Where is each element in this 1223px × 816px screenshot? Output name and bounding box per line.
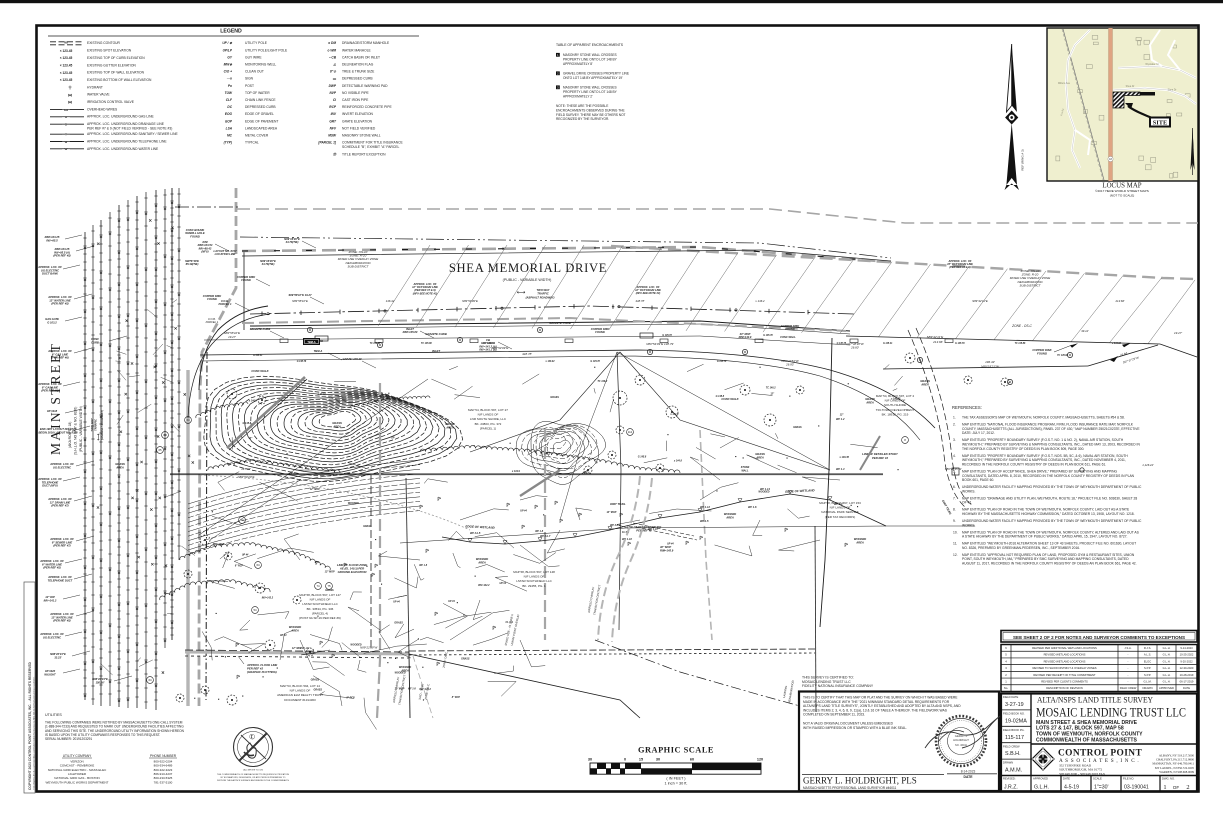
svg-text:MAP 58, BLOCK 597, LOT 147: MAP 58, BLOCK 597, LOT 147 bbox=[299, 593, 341, 597]
svg-text:MAP 58, BLOCK 597, LOT 148: MAP 58, BLOCK 597, LOT 148 bbox=[513, 570, 555, 574]
svg-text:63: 63 bbox=[163, 433, 167, 437]
svg-text:12" MOP: 12" MOP bbox=[606, 511, 616, 514]
svg-text:NO. 8326, PREPARED BY GREENMAN: NO. 8326, PREPARED BY GREENMAN-PEDERSEN,… bbox=[962, 546, 1080, 550]
svg-text:GRANITE CURB: GRANITE CURB bbox=[250, 327, 271, 331]
svg-text:▪ CB: ▪ CB bbox=[329, 55, 336, 59]
svg-text:FIELD CREW: FIELD CREW bbox=[1120, 686, 1137, 690]
svg-text:WORKS.: WORKS. bbox=[962, 523, 975, 527]
svg-text:120: 120 bbox=[757, 757, 763, 761]
svg-text:WOODED: WOODED bbox=[724, 512, 736, 516]
svg-text:PARCEL 1: PARCEL 1 bbox=[206, 320, 219, 324]
svg-text:SOUTH SHORE: SOUTH SHORE bbox=[884, 403, 906, 407]
svg-text:DUCT (NFV): DUCT (NFV) bbox=[42, 484, 57, 488]
svg-text:11.: 11. bbox=[953, 542, 957, 546]
svg-text:CLF: CLF bbox=[226, 98, 233, 102]
svg-text:LOCATION LINE: LOCATION LINE bbox=[215, 252, 236, 256]
svg-text:10-28-2019: 10-28-2019 bbox=[1180, 673, 1194, 677]
svg-text:GRATE ELEVATION: GRATE ELEVATION bbox=[342, 119, 373, 123]
svg-text:(POST 9A SP-19 PER REF #9): (POST 9A SP-19 PER REF #9) bbox=[299, 616, 341, 620]
svg-text:AUGUST 11, 2017, RECORDED IN T: AUGUST 11, 2017, RECORDED IN THE NORFOLK… bbox=[962, 562, 1137, 566]
svg-text:SHEA MEMORIAL DRIVE: SHEA MEMORIAL DRIVE bbox=[449, 261, 607, 275]
svg-text:(AKA ROUTE 18): (AKA ROUTE 18) bbox=[68, 422, 72, 448]
svg-text:LSA: LSA bbox=[226, 126, 233, 130]
svg-text:A STATE HIGHWAY BY THE DEPARTM: A STATE HIGHWAY BY THE DEPARTMENT OF PUB… bbox=[962, 535, 1128, 539]
svg-text:UG ELECTRIC: UG ELECTRIC bbox=[43, 635, 61, 639]
svg-text:NO VISIBLE PIPE: NO VISIBLE PIPE bbox=[342, 91, 370, 95]
svg-text:FIDELITY NATIONAL INSURANCE CO: FIDELITY NATIONAL INSURANCE COMPANY bbox=[802, 684, 874, 688]
svg-text:AMERICAN ELM REALTY TRUST: AMERICAN ELM REALTY TRUST bbox=[277, 693, 323, 697]
svg-text:WOODED: WOODED bbox=[348, 502, 359, 505]
svg-text:G.L.H.: G.L.H. bbox=[1163, 680, 1171, 684]
svg-text:FIELD BOOK NO.: FIELD BOOK NO. bbox=[1003, 712, 1025, 716]
svg-text:UP / ⊕: UP / ⊕ bbox=[222, 41, 232, 45]
svg-text:G 145.78: G 145.78 bbox=[590, 360, 600, 363]
svg-text:TC 146.21: TC 146.21 bbox=[483, 342, 494, 345]
svg-text:WF 1-8: WF 1-8 bbox=[419, 564, 428, 567]
svg-text:FOUND: FOUND bbox=[1037, 351, 1047, 355]
svg-text:SERIAL NUMBER: 20191203291: SERIAL NUMBER: 20191203291 bbox=[45, 737, 92, 741]
svg-text:DIRT TRAIL: DIRT TRAIL bbox=[610, 502, 626, 506]
svg-text:G 145.78: G 145.78 bbox=[662, 334, 672, 337]
svg-text:REINFORCED CONCRETE PIPE: REINFORCED CONCRETE PIPE bbox=[342, 105, 392, 109]
svg-text:APPROXIMATELY 2': APPROXIMATELY 2' bbox=[563, 94, 593, 98]
svg-text:112: 112 bbox=[628, 430, 633, 434]
svg-text:1: 1 bbox=[1163, 784, 1166, 791]
svg-text:G.L.H.: G.L.H. bbox=[1034, 784, 1049, 790]
svg-text:LINE OF DETAILED STUDY: LINE OF DETAILED STUDY bbox=[627, 525, 662, 529]
svg-text:UG ELECTRIC: UG ELECTRIC bbox=[53, 465, 71, 469]
svg-text:GRASS: GRASS bbox=[865, 397, 875, 401]
svg-text:WOODED: WOODED bbox=[759, 491, 770, 494]
svg-text:AREA: AREA bbox=[582, 471, 590, 474]
svg-text:G 145.8: G 145.8 bbox=[243, 422, 252, 425]
svg-text:UP #4: UP #4 bbox=[520, 509, 527, 512]
svg-text:TV: TV bbox=[595, 461, 598, 464]
svg-text:WOODED: WOODED bbox=[476, 557, 488, 561]
svg-text:S89°58'10"E 19.27: S89°58'10"E 19.27 bbox=[288, 293, 312, 297]
svg-text:NFV: NFV bbox=[330, 126, 337, 130]
svg-text:G 145.41: G 145.41 bbox=[253, 354, 263, 357]
svg-text:DATE: JULY 17, 2012.: DATE: JULY 17, 2012. bbox=[962, 431, 995, 435]
svg-text:CONC WALL: CONC WALL bbox=[780, 335, 796, 339]
svg-text:LEGEND: LEGEND bbox=[220, 29, 242, 35]
svg-text:RCP: RCP bbox=[329, 105, 337, 109]
svg-text:DATE: DATE bbox=[964, 775, 974, 779]
svg-text:SUB-DISTRICT: SUB-DISTRICT bbox=[1020, 283, 1042, 287]
svg-text:NOT FIELD VERIFIED: NOT FIELD VERIFIED bbox=[342, 126, 376, 130]
svg-text:SCALE: SCALE bbox=[1093, 777, 1102, 781]
svg-text:UTILITY COMPANY: UTILITY COMPANY bbox=[63, 754, 92, 758]
svg-text:-: - bbox=[1128, 674, 1129, 677]
svg-text:(PER-REF #6): (PER-REF #6) bbox=[51, 356, 68, 360]
svg-text:S89°42'11"E: S89°42'11"E bbox=[972, 299, 988, 303]
svg-text:DRAWN: DRAWN bbox=[1003, 761, 1013, 765]
svg-text:ENCROACHMENTS OBSERVED DURING: ENCROACHMENTS OBSERVED DURING THE bbox=[556, 108, 625, 112]
svg-text:No.: No. bbox=[1004, 686, 1008, 690]
svg-text:( IN FEET ): ( IN FEET ) bbox=[666, 777, 686, 781]
svg-text:WALL: WALL bbox=[741, 469, 749, 472]
svg-text:-: - bbox=[1128, 654, 1129, 657]
svg-text:INV=95.5: INV=95.5 bbox=[46, 238, 58, 242]
svg-text:MASSACHUSETTS PROFESSIONAL LAN: MASSACHUSETTS PROFESSIONAL LAND SURVEYOR… bbox=[803, 786, 897, 790]
svg-text:UP #318: UP #318 bbox=[47, 409, 58, 413]
svg-text:COMMITMENT FOR TITLE INSURANCE: COMMITMENT FOR TITLE INSURANCE bbox=[342, 141, 403, 145]
svg-text:(GRAPHIC PLOTTING): (GRAPHIC PLOTTING) bbox=[247, 670, 277, 674]
svg-text:3-27-19: 3-27-19 bbox=[1005, 702, 1024, 708]
svg-text:DRAINAGE/STORM MANHOLE: DRAINAGE/STORM MANHOLE bbox=[342, 41, 390, 45]
svg-text:× 123.45: × 123.45 bbox=[60, 71, 73, 75]
svg-text:Po: Po bbox=[228, 84, 232, 88]
svg-text:TC 145.88: TC 145.88 bbox=[1057, 354, 1068, 357]
svg-text:GRATE=146.19: GRATE=146.19 bbox=[343, 357, 363, 361]
svg-text:781-337-5100: 781-337-5100 bbox=[154, 780, 173, 784]
svg-text:S.P.P.: S.P.P. bbox=[1144, 666, 1151, 670]
svg-text:150.00': 150.00' bbox=[96, 680, 105, 684]
svg-text:HIGHWAY BY THE MASSACHUSETTS H: HIGHWAY BY THE MASSACHUSETTS HIGHWAY COM… bbox=[962, 512, 1135, 516]
svg-text:LSTAR SOUTHFIELD LLC: LSTAR SOUTHFIELD LLC bbox=[516, 579, 552, 583]
svg-text:GRASS: GRASS bbox=[363, 525, 372, 528]
svg-text:× 123.45: × 123.45 bbox=[60, 78, 73, 82]
svg-text:GRASS: GRASS bbox=[311, 679, 320, 682]
svg-text:DATE: DATE bbox=[1063, 777, 1070, 781]
svg-text:x 146.2: x 146.2 bbox=[754, 299, 765, 303]
svg-text:12" MOP: 12" MOP bbox=[292, 647, 302, 650]
svg-text:TREE & TRUNK SIZE: TREE & TRUNK SIZE bbox=[342, 70, 375, 74]
svg-text:REVISED WETLAND LOCATIONS: REVISED WETLAND LOCATIONS bbox=[1044, 653, 1086, 657]
svg-text:508.948.3000 - 508.948.300: 508.948.3000 - 508.948.3003 FAX bbox=[1059, 772, 1106, 776]
svg-text:AREA: AREA bbox=[855, 540, 864, 544]
svg-text:WF 1-2: WF 1-2 bbox=[836, 417, 845, 421]
svg-text:APPROVED: APPROVED bbox=[1159, 686, 1174, 690]
svg-text:(NFV): (NFV) bbox=[201, 250, 208, 254]
svg-text:(PER REF #7): (PER REF #7) bbox=[51, 504, 68, 508]
svg-text:GRASS: GRASS bbox=[314, 689, 323, 692]
svg-text:(PER TAX RECORDS): (PER TAX RECORDS) bbox=[825, 515, 855, 519]
svg-text:TELEPHONE DUCT: TELEPHONE DUCT bbox=[48, 578, 73, 582]
svg-text:UNDERGROUND WATER FACILITY MAP: UNDERGROUND WATER FACILITY MAPPING PROVI… bbox=[962, 485, 1142, 489]
svg-text:-: - bbox=[1128, 667, 1129, 670]
svg-text:SCHEDULE "B", EXHIBIT "A" PARC: SCHEDULE "B", EXHIBIT "A" PARCEL bbox=[342, 145, 399, 149]
svg-text:EDGE OF GRAVEL: EDGE OF GRAVEL bbox=[245, 112, 274, 116]
svg-text:AREA: AREA bbox=[332, 424, 341, 428]
svg-text:FIELD BOOK PG.: FIELD BOOK PG. bbox=[1003, 728, 1025, 732]
svg-text:ELOC: ELOC bbox=[1144, 659, 1151, 663]
svg-text:MASONRY STONE WALL CROSSES: MASONRY STONE WALL CROSSES bbox=[563, 53, 617, 57]
svg-text:MAP 54, BLOCK 597, LOT 2: MAP 54, BLOCK 597, LOT 2 bbox=[876, 394, 915, 398]
svg-text:AREA: AREA bbox=[290, 628, 299, 632]
svg-text:INLET: INLET bbox=[432, 349, 440, 353]
svg-text:GRASS: GRASS bbox=[755, 452, 765, 456]
svg-text:EXISTING BOTTOM OF WALL ELEVAT: EXISTING BOTTOM OF WALL ELEVATION bbox=[87, 78, 152, 82]
svg-text:DETECTABLE WARNING PAD: DETECTABLE WARNING PAD bbox=[342, 84, 388, 88]
svg-text:©2017 HERE WORLD STREET MAPS: ©2017 HERE WORLD STREET MAPS bbox=[1095, 189, 1149, 193]
svg-text:CI: CI bbox=[333, 98, 336, 102]
svg-text:EXISTING TOP OF CURB ELEVATION: EXISTING TOP OF CURB ELEVATION bbox=[87, 56, 145, 60]
svg-text:x 144.9: x 144.9 bbox=[317, 393, 327, 396]
svg-text:N/F LANDS OF: N/F LANDS OF bbox=[478, 413, 499, 417]
svg-text:G 145.78: G 145.78 bbox=[717, 360, 727, 363]
svg-text:SUB-DISTRICT: SUB-DISTRICT bbox=[348, 264, 370, 268]
svg-text:PARCEL 1: PARCEL 1 bbox=[218, 302, 232, 306]
svg-text:CAST IRON PIPE: CAST IRON PIPE bbox=[342, 98, 369, 102]
svg-text:G 145.8: G 145.8 bbox=[638, 456, 647, 459]
svg-text:REFERENCES:: REFERENCES: bbox=[952, 405, 982, 410]
svg-text:GRAPHIC SCALE: GRAPHIC SCALE bbox=[638, 746, 714, 755]
svg-text:BK. 18918, PG. 219: BK. 18918, PG. 219 bbox=[882, 412, 909, 416]
svg-text:THIS DRAWING AND ALL COPYRIGHT: THIS DRAWING AND ALL COPYRIGHTABLE COMPO… bbox=[33, 676, 36, 790]
svg-text:GRASS: GRASS bbox=[920, 379, 930, 383]
svg-text:2: 2 bbox=[1186, 784, 1189, 791]
svg-text:74: 74 bbox=[316, 584, 320, 588]
svg-text:(PUBLIC - VARIABLE WIDTH): (PUBLIC - VARIABLE WIDTH) bbox=[503, 278, 552, 282]
svg-text:APPROXIMATELY 8': APPROXIMATELY 8' bbox=[563, 62, 593, 66]
svg-text:(PARCEL 4): (PARCEL 4) bbox=[312, 611, 328, 615]
svg-text:C/O +: C/O + bbox=[224, 70, 233, 74]
svg-text:AREA: AREA bbox=[400, 668, 409, 672]
svg-text:REVISED PER ADDITIONAL WETLAND: REVISED PER ADDITIONAL WETLAND LOCATIONS bbox=[1032, 646, 1097, 650]
svg-text:⟷: ⟷ bbox=[517, 290, 526, 296]
svg-text:x 146.35: x 146.35 bbox=[839, 456, 850, 459]
svg-text:GRAVEL DRIVE CROSSES PROPERTY: GRAVEL DRIVE CROSSES PROPERTY LINE bbox=[563, 72, 629, 76]
svg-text:⋈: ⋈ bbox=[68, 100, 72, 105]
svg-text:TC 145.88: TC 145.88 bbox=[421, 342, 432, 345]
svg-text:AREA: AREA bbox=[445, 425, 454, 429]
svg-text:WATER VALVE: WATER VALVE bbox=[87, 93, 110, 97]
svg-text:CHAIN LINK FENCE: CHAIN LINK FENCE bbox=[245, 98, 276, 102]
svg-text:TYPICAL: TYPICAL bbox=[245, 141, 259, 145]
svg-text:WF 1-8: WF 1-8 bbox=[408, 688, 417, 691]
svg-text:5.: 5. bbox=[953, 469, 956, 473]
svg-text:REVISED PER CLIENTS COMMENTS: REVISED PER CLIENTS COMMENTS bbox=[1041, 680, 1088, 684]
svg-text:LNR SOUTH SHORE, LLC: LNR SOUTH SHORE, LLC bbox=[470, 417, 507, 421]
svg-text:INV=142.2: INV=142.2 bbox=[262, 596, 274, 599]
svg-text:UTILITY POLE/LIGHT POLE: UTILITY POLE/LIGHT POLE bbox=[245, 48, 288, 52]
svg-text:1.: 1. bbox=[953, 416, 956, 420]
svg-text:64: 64 bbox=[186, 418, 190, 422]
svg-text:54: 54 bbox=[253, 608, 257, 612]
svg-text:WOODED: WOODED bbox=[399, 665, 411, 669]
svg-text:8" RCP: 8" RCP bbox=[452, 696, 461, 699]
svg-text:UP #4: UP #4 bbox=[280, 634, 287, 637]
svg-text:1"=30': 1"=30' bbox=[1094, 784, 1109, 790]
svg-text:INV: INV bbox=[331, 112, 337, 116]
svg-text:× 123.45: × 123.45 bbox=[60, 49, 73, 53]
svg-text:ZONE - OS-C: ZONE - OS-C bbox=[1011, 324, 1032, 328]
svg-text:THE TAX ASSESSOR'S MAP OF WEYM: THE TAX ASSESSOR'S MAP OF WEYMOUTH, NORF… bbox=[962, 416, 1125, 420]
svg-text:26.60': 26.60' bbox=[850, 345, 859, 349]
svg-text:64: 64 bbox=[256, 563, 260, 567]
svg-text:APPROX. LOC. UNDERGROUND TELEP: APPROX. LOC. UNDERGROUND TELEPHONE LINE bbox=[87, 139, 167, 143]
svg-text:30: 30 bbox=[588, 757, 592, 761]
svg-text:98: 98 bbox=[64, 41, 68, 45]
svg-text:MASONRY STONE WALL CROSSES: MASONRY STONE WALL CROSSES bbox=[563, 86, 617, 90]
svg-text:Shea Dr: Shea Dr bbox=[1168, 89, 1177, 92]
svg-text:LSTAR SOUTHFIELD LLC: LSTAR SOUTHFIELD LLC bbox=[302, 602, 338, 606]
svg-text:N89°22'19"W: N89°22'19"W bbox=[360, 646, 377, 650]
svg-text:TRI-TOWN DEVELOPMENT: TRI-TOWN DEVELOPMENT bbox=[876, 408, 915, 412]
svg-text:APPROVED: APPROVED bbox=[1033, 777, 1048, 781]
svg-text:147.37': 147.37' bbox=[241, 467, 251, 471]
svg-text:UP #4: UP #4 bbox=[242, 553, 249, 556]
svg-text:RIM=145.80: RIM=145.80 bbox=[403, 330, 418, 334]
svg-text:N/F LANDS OF: N/F LANDS OF bbox=[290, 689, 311, 693]
svg-text:06-17-2019: 06-17-2019 bbox=[1180, 680, 1194, 684]
svg-text:UP #4: UP #4 bbox=[500, 582, 507, 585]
svg-text:448.78': 448.78' bbox=[522, 352, 532, 356]
svg-text:N/F LANDS OF: N/F LANDS OF bbox=[830, 506, 851, 510]
svg-text:FOUND: FOUND bbox=[785, 327, 795, 331]
svg-text:o DM: o DM bbox=[328, 41, 336, 45]
svg-text:G.L.H.: G.L.H. bbox=[1163, 653, 1171, 657]
svg-text:EOP: EOP bbox=[225, 119, 233, 123]
svg-text:MW⊕: MW⊕ bbox=[224, 63, 233, 67]
svg-text:GRASS: GRASS bbox=[445, 422, 455, 426]
svg-text:—o: —o bbox=[226, 77, 232, 81]
svg-text:UP: UP bbox=[391, 437, 395, 440]
svg-text:S.P.P.: S.P.P. bbox=[1144, 673, 1151, 677]
svg-text:S89°54'09"E: S89°54'09"E bbox=[462, 299, 478, 303]
svg-text:DC: DC bbox=[227, 105, 232, 109]
svg-text:60: 60 bbox=[690, 757, 694, 761]
svg-text:MC: MC bbox=[227, 134, 233, 138]
svg-text:SEE SHEET 2 OF 2 FOR NOTES AND: SEE SHEET 2 OF 2 FOR NOTES AND SURVEYOR … bbox=[1013, 635, 1185, 640]
svg-text:× 123.45: × 123.45 bbox=[60, 63, 73, 67]
svg-text:APPROX. LOC. UNDERGROUND DRAIN: APPROX. LOC. UNDERGROUND DRAINAGE LINE bbox=[87, 122, 165, 126]
svg-text:LANDSCAPED AREA: LANDSCAPED AREA bbox=[245, 126, 278, 130]
svg-text:GRASS: GRASS bbox=[394, 622, 403, 625]
svg-text:TC 146.2: TC 146.2 bbox=[766, 386, 777, 389]
svg-text:GERRY L. HOLDRIGHT, PLS: GERRY L. HOLDRIGHT, PLS bbox=[803, 776, 917, 786]
svg-text:G.L.H.: G.L.H. bbox=[1163, 666, 1171, 670]
svg-text:W: W bbox=[65, 140, 68, 144]
svg-text:A.M.M.: A.M.M. bbox=[1005, 768, 1022, 774]
svg-text:30: 30 bbox=[656, 757, 660, 761]
svg-text:T: T bbox=[65, 132, 67, 136]
svg-text:DEPRESSED CURB: DEPRESSED CURB bbox=[342, 77, 373, 81]
svg-text:FIELD DATE: FIELD DATE bbox=[1003, 695, 1019, 699]
svg-text:MOSAIC LENDING TRUST LLC: MOSAIC LENDING TRUST LLC bbox=[1036, 706, 1186, 720]
svg-text:AREA: AREA bbox=[755, 455, 764, 459]
svg-text:x 146.02: x 146.02 bbox=[545, 360, 556, 363]
svg-text:64: 64 bbox=[148, 678, 152, 682]
svg-text:44.78(TIE): 44.78(TIE) bbox=[285, 240, 299, 244]
svg-text:(PER REF #5): (PER REF #5) bbox=[53, 254, 70, 258]
svg-text:WF 1-10: WF 1-10 bbox=[622, 537, 633, 541]
svg-text:N/F LANDS OF: N/F LANDS OF bbox=[310, 598, 331, 602]
svg-text:WF 1-3: WF 1-3 bbox=[836, 467, 845, 471]
svg-text:G 145.41: G 145.41 bbox=[883, 342, 893, 345]
svg-text:FIELD CREW: FIELD CREW bbox=[1003, 744, 1020, 748]
svg-text:MSW: MSW bbox=[328, 134, 337, 138]
svg-text:26.93': 26.93' bbox=[785, 362, 794, 366]
svg-text:(NOT TO SCALE): (NOT TO SCALE) bbox=[1110, 194, 1135, 198]
svg-text:TRAFFIC: TRAFFIC bbox=[94, 418, 98, 431]
svg-text:EOG: EOG bbox=[225, 112, 233, 116]
svg-text:AREA: AREA bbox=[477, 560, 486, 564]
svg-text:AREA: AREA bbox=[920, 382, 929, 386]
svg-text:GRASS: GRASS bbox=[332, 421, 342, 425]
svg-text:WORKS.: WORKS. bbox=[962, 489, 975, 493]
svg-text:CLEAN OUT: CLEAN OUT bbox=[245, 70, 264, 74]
svg-text:9-20-2022: 9-20-2022 bbox=[1180, 659, 1193, 663]
svg-text:-: - bbox=[1128, 681, 1129, 684]
svg-text:448.78': 448.78' bbox=[635, 299, 645, 303]
svg-text:GRASS: GRASS bbox=[461, 657, 470, 660]
svg-text:4.: 4. bbox=[953, 454, 956, 458]
svg-text:RECORDED IN THE NORFOLK COUNTY: RECORDED IN THE NORFOLK COUNTY REGISTRY … bbox=[962, 462, 1106, 466]
svg-text:CALL BEFORE YOU DIG: CALL BEFORE YOU DIG bbox=[243, 769, 264, 772]
svg-text:PROPERTY LINE ONTO LOT 148 BY: PROPERTY LINE ONTO LOT 148 BY bbox=[563, 57, 618, 61]
svg-text:(NFV-SEE NOTE #3): (NFV-SEE NOTE #3) bbox=[636, 291, 661, 295]
svg-text:-: - bbox=[1128, 660, 1129, 663]
svg-text:REVISED TO SHOW DISTRICT & OVE: REVISED TO SHOW DISTRICT & OVERLAY ZONES bbox=[1032, 666, 1096, 670]
svg-text:HYDRANT: HYDRANT bbox=[87, 85, 103, 89]
svg-text:REF (RING # 3): REF (RING # 3) bbox=[1021, 149, 1025, 170]
svg-text:EXISTING GUTTER ELEVATION: EXISTING GUTTER ELEVATION bbox=[87, 63, 136, 67]
svg-text:S89°42'11"E: S89°42'11"E bbox=[927, 335, 945, 339]
svg-text:NATIONAL PARK SERVICE: NATIONAL PARK SERVICE bbox=[821, 510, 858, 514]
svg-text:S.B.H.: S.B.H. bbox=[1005, 751, 1021, 757]
svg-text:IRRIGATION CONTROL VALVE: IRRIGATION CONTROL VALVE bbox=[87, 100, 135, 104]
svg-text:33.23': 33.23' bbox=[54, 655, 62, 659]
svg-text:DWP: DWP bbox=[329, 84, 337, 88]
svg-text:WEYMOUTH PUBLIC WORKS DEPARTME: WEYMOUTH PUBLIC WORKS DEPARTMENT bbox=[46, 780, 109, 784]
svg-text:FILE NO.: FILE NO. bbox=[1123, 777, 1134, 781]
svg-text:15: 15 bbox=[639, 757, 643, 761]
svg-text:AREA: AREA bbox=[865, 400, 874, 404]
svg-text:19.27': 19.27' bbox=[228, 335, 236, 339]
svg-text:TOW: TOW bbox=[225, 91, 233, 95]
svg-text:WF 1-8: WF 1-8 bbox=[535, 530, 544, 533]
svg-text:CATCH BASIN OR INLET: CATCH BASIN OR INLET bbox=[342, 55, 380, 59]
svg-text:(PER REF #7 & 9): (PER REF #7 & 9) bbox=[949, 265, 970, 269]
svg-text:FOUND: FOUND bbox=[241, 278, 251, 282]
svg-text:G.L.H.: G.L.H. bbox=[1163, 646, 1171, 650]
svg-text:196.43': 196.43' bbox=[985, 360, 995, 364]
svg-text:10.: 10. bbox=[953, 530, 958, 534]
svg-text:8.: 8. bbox=[953, 508, 956, 512]
svg-text:75: 75 bbox=[327, 584, 331, 588]
svg-text:DEPRESSED CURB: DEPRESSED CURB bbox=[245, 105, 276, 109]
svg-text:3.: 3. bbox=[953, 438, 956, 442]
svg-text:[PARCEL 1]: [PARCEL 1] bbox=[480, 426, 496, 430]
svg-text:(TYP): (TYP) bbox=[224, 141, 232, 145]
svg-text:TBM-A: TBM-A bbox=[307, 340, 315, 344]
svg-text:12" MOP: 12" MOP bbox=[310, 488, 320, 491]
svg-text:TRAFFIC: TRAFFIC bbox=[537, 291, 549, 295]
svg-text:RECOGNIZED BY THE SURVEYOR.: RECOGNIZED BY THE SURVEYOR. bbox=[556, 117, 609, 121]
svg-text:COMPLETED ON SEPTEMBER 11, 202: COMPLETED ON SEPTEMBER 11, 2023. bbox=[803, 713, 865, 717]
svg-text:THE COMMONWEALTH OF MASSACHUSE: THE COMMONWEALTH OF MASSACHUSETTS REQUIR… bbox=[217, 773, 289, 776]
svg-text:DATE: DATE bbox=[1183, 686, 1190, 690]
svg-text:GUY WIRE: GUY WIRE bbox=[245, 55, 262, 59]
svg-text:AREA: AREA bbox=[725, 515, 734, 519]
svg-text:CURB: CURB bbox=[91, 340, 99, 344]
svg-text:DISTURB THE EARTH'S SURFACE AN: DISTURB THE EARTH'S SURFACE ANYWHERE IN … bbox=[217, 779, 290, 782]
svg-text:GRASS: GRASS bbox=[550, 396, 559, 399]
svg-text:TITLE REPORT EXCEPTION: TITLE REPORT EXCEPTION bbox=[342, 152, 386, 156]
svg-text:EDGE OF PAVEMENT: EDGE OF PAVEMENT bbox=[245, 119, 278, 123]
svg-text:INV=141.1 (B): INV=141.1 (B) bbox=[479, 348, 496, 352]
svg-text:TABLE OF APPARENT ENCROACHMENT: TABLE OF APPARENT ENCROACHMENTS bbox=[556, 43, 624, 47]
svg-text:RIM=143.9: RIM=143.9 bbox=[739, 335, 752, 339]
svg-text:MAP ENTITLED "DRAINAGE AND UTI: MAP ENTITLED "DRAINAGE AND UTILITY PLAN,… bbox=[962, 496, 1137, 500]
svg-text:A.L.S.: A.L.S. bbox=[1144, 653, 1152, 657]
svg-text:N/F LANDS OF: N/F LANDS OF bbox=[885, 399, 906, 403]
svg-text:GRASS: GRASS bbox=[793, 426, 802, 429]
svg-text:NVP: NVP bbox=[329, 91, 336, 95]
svg-text:REVISED WETLAND LOCATIONS: REVISED WETLAND LOCATIONS bbox=[1044, 659, 1086, 663]
